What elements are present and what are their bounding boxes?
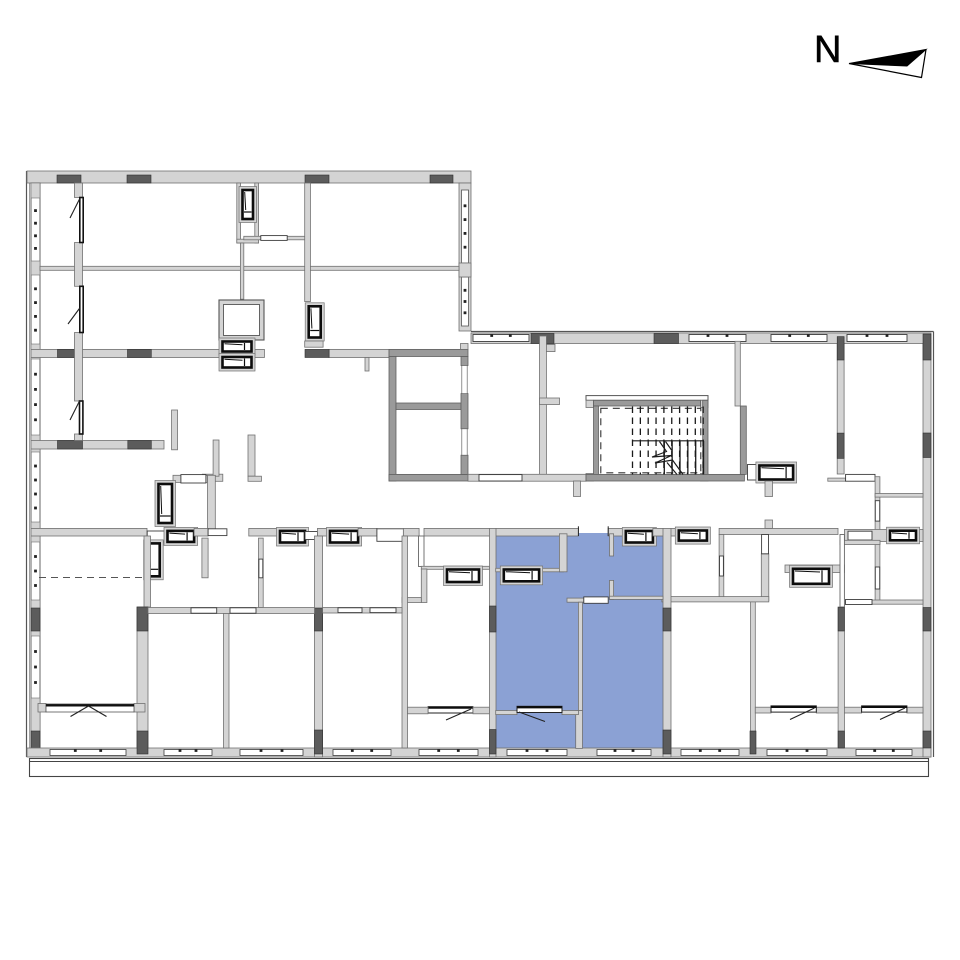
svg-text:N: N: [814, 29, 841, 71]
